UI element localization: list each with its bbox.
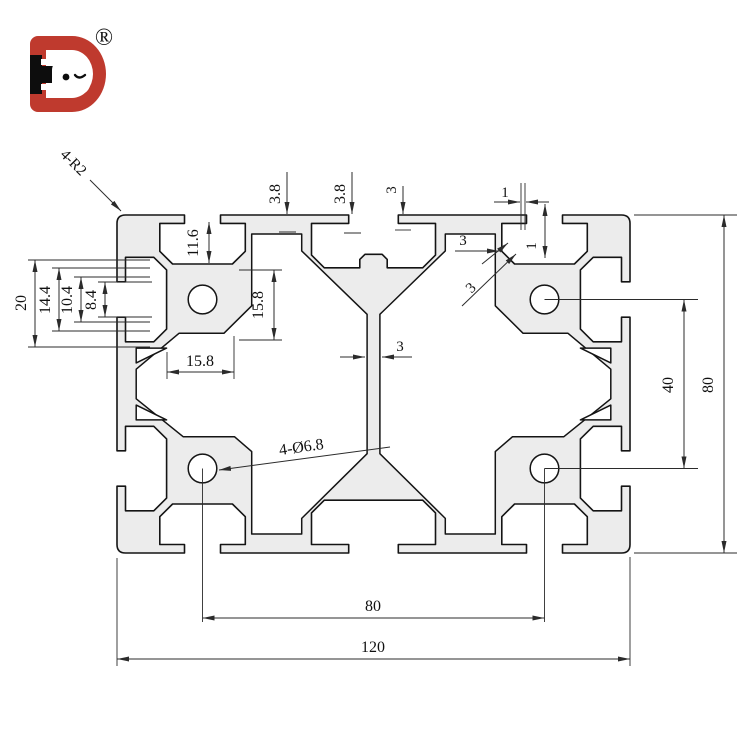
dim-slot-opening-width: 8.4 [83, 282, 152, 317]
technical-drawing: 4-R2 3.8 3.8 3 1 1 [0, 0, 750, 750]
dim-label: 8.4 [83, 290, 100, 310]
dim-label: 120 [361, 639, 385, 656]
dim-label: 1 [501, 185, 509, 201]
dim-label: 14.4 [37, 286, 54, 314]
logo-letter-h [30, 55, 42, 94]
dim-label: 3 [459, 233, 467, 249]
brand-logo: ® [30, 25, 113, 112]
dim-label: 3 [396, 339, 404, 355]
dim-label: 20 [13, 295, 30, 311]
dim-label: 40 [660, 377, 677, 393]
dim-corner-radius: 4-R2 [57, 147, 121, 211]
profile-body [117, 215, 630, 553]
robot-eye-left [63, 74, 70, 81]
dim-profile-height: 80 [700, 215, 724, 553]
dim-label: 1 [524, 242, 540, 250]
dim-gap-depth: 1 [524, 204, 545, 258]
registered-mark: ® [95, 25, 113, 51]
dim-hole-pitch-vertical: 40 [660, 300, 684, 469]
dim-slot-depth: 11.6 [185, 222, 209, 263]
bore-hole [188, 285, 217, 314]
robot-face [52, 54, 90, 94]
dim-label: 3.8 [267, 184, 284, 204]
dim-label: 80 [700, 377, 717, 393]
dim-label: 3 [384, 186, 400, 194]
dim-label: 10.4 [59, 286, 76, 314]
dim-label: 15.8 [186, 353, 214, 370]
dim-label: 3.8 [332, 184, 349, 204]
drawing-canvas: 4-R2 3.8 3.8 3 1 1 [0, 0, 750, 750]
dim-corner-radius-label: 4-R2 [57, 147, 90, 180]
dim-label: 15.8 [250, 291, 267, 319]
dim-hole-pitch-horizontal: 80 [203, 598, 545, 618]
dim-profile-width: 120 [117, 639, 630, 659]
dim-label: 11.6 [185, 229, 202, 256]
dim-label: 80 [365, 598, 381, 615]
